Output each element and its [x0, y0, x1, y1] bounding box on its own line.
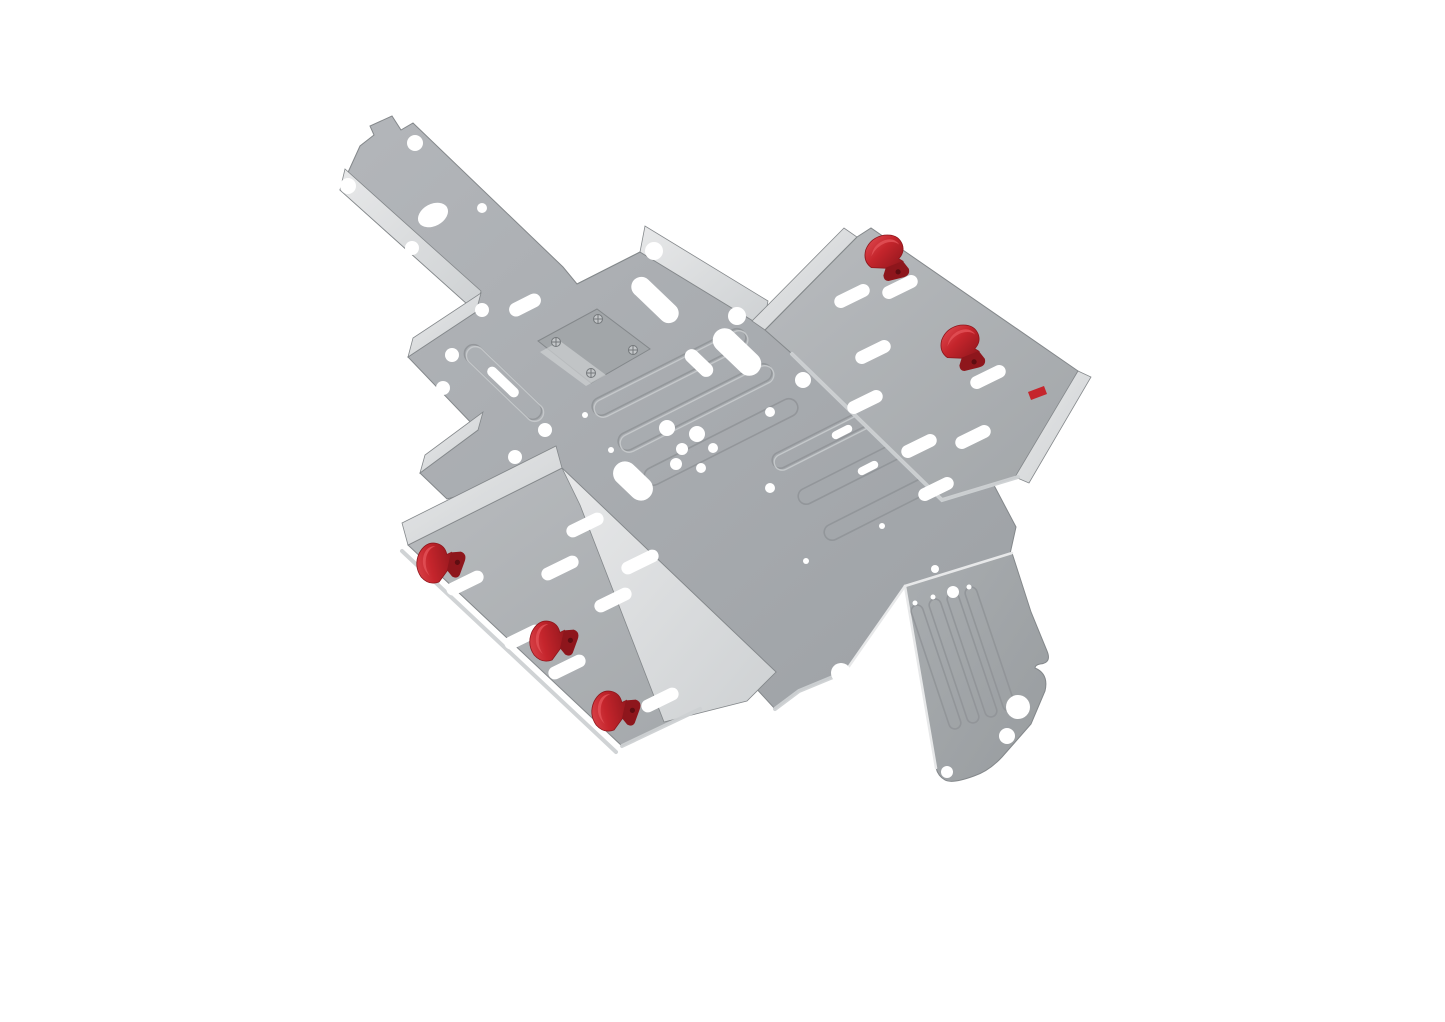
- screw: [629, 346, 638, 355]
- cad-render: [0, 0, 1445, 1022]
- screw: [552, 338, 561, 347]
- render-viewport: [0, 0, 1445, 1022]
- screw: [587, 369, 596, 378]
- tail-flap: [905, 553, 1048, 781]
- screw: [594, 315, 603, 324]
